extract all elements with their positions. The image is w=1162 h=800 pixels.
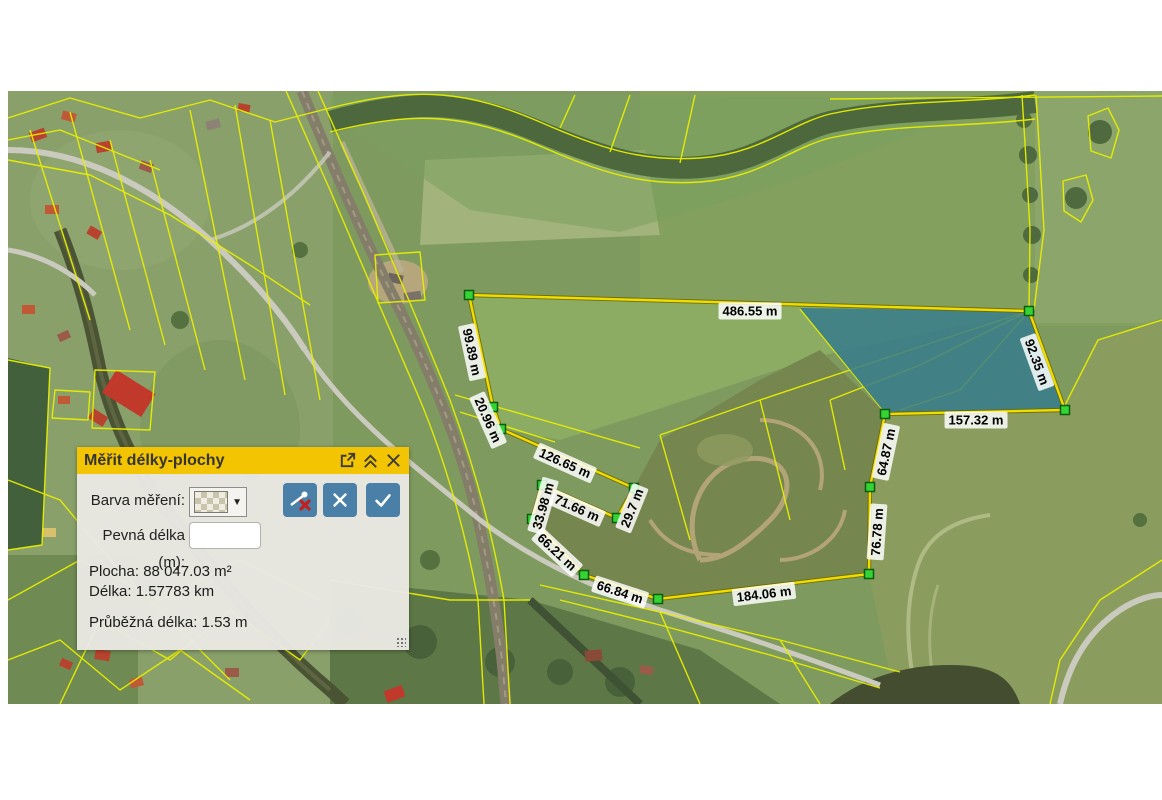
cancel-measure-button[interactable] [323,483,357,517]
dropdown-arrow-icon: ▼ [232,497,242,508]
measure-color-select[interactable]: ▼ [189,487,247,517]
collapse-icon[interactable] [360,450,381,471]
length-stat-value: 1.57783 km [136,583,214,600]
fixed-length-input[interactable] [189,522,261,549]
length-stat-label: Délka: [89,583,132,600]
remove-last-point-button[interactable] [283,483,317,517]
popout-icon[interactable] [337,450,358,471]
confirm-measure-button[interactable] [366,483,400,517]
dialog-title: Měřit délky-plochy [77,452,337,470]
transparent-swatch [194,491,228,513]
x-icon [329,489,351,511]
resize-grip[interactable] [395,636,406,647]
running-length-stat-value: 1.53 m [202,614,248,631]
check-icon [372,489,394,511]
measure-line-delete-icon [288,488,312,512]
length-stat: Délka: 1.57783 km [89,582,214,602]
app-window: { "panel": { "title": "Měřit délky-ploch… [0,0,1162,800]
dialog-body: Barva měření: ▼ Pevná délka (m): [77,474,409,650]
dialog-titlebar[interactable]: Měřit délky-plochy [77,447,409,474]
area-stat-label: Plocha: [89,563,139,580]
close-icon[interactable] [383,450,404,471]
running-length-stat: Průběžná délka: 1.53 m [89,613,247,633]
area-stat: Plocha: 88 047.03 m² [89,562,232,582]
running-length-stat-label: Průběžná délka: [89,614,197,631]
measure-dialog: Měřit délky-plochy Barva měření: [77,447,409,650]
area-stat-value: 88 047.03 m² [143,563,231,580]
measure-color-label: Barva měření: [77,483,185,519]
